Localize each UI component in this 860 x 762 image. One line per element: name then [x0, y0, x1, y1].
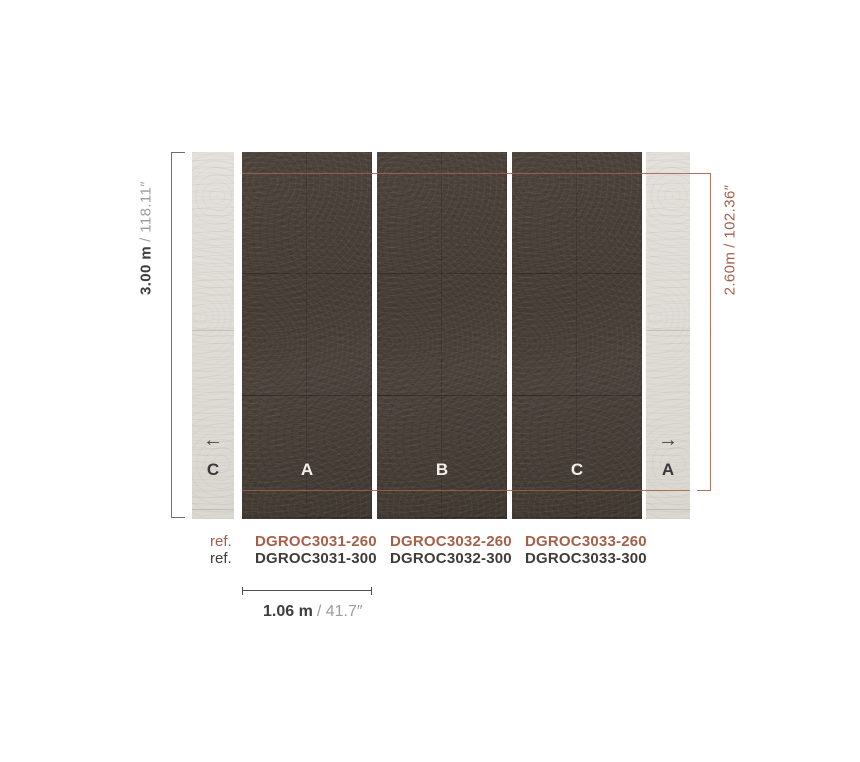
panel-light-right: → A: [646, 152, 690, 519]
panel-width-line: [242, 590, 372, 591]
panel-width-imperial: / 41.7″: [317, 603, 363, 620]
ref-code-panel-c-260: DGROC3033-260: [525, 533, 647, 550]
wallcovering-dimension-diagram: 3.00 m/ 118.11″ ← C A B C → A 2.60m/ 102…: [0, 0, 860, 762]
panel-width-metric: 1.06 m: [263, 603, 313, 620]
usable-height-bottom-line: [242, 490, 690, 491]
ref-code-panel-b-300: DGROC3032-300: [390, 550, 512, 567]
total-height-bracket-tick-bottom: [172, 517, 185, 518]
panel-width-tick-right: [371, 587, 372, 595]
ref-code-panel-b-260: DGROC3032-260: [390, 533, 512, 550]
panel-label-c: C: [571, 461, 583, 478]
total-height-imperial: / 118.11″: [138, 181, 155, 242]
ref-code-panel-a-300: DGROC3031-300: [255, 550, 377, 567]
total-height-dimension: 3.00 m/ 118.11″: [139, 181, 154, 295]
usable-height-dimension: 2.60m/ 102.36″: [723, 185, 738, 296]
ref-label-260: ref.: [210, 533, 232, 550]
ref-row-260: ref. DGROC3031-260 DGROC3032-260 DGROC30…: [0, 533, 860, 550]
usable-height-imperial: / 102.36″: [722, 185, 739, 248]
panel-label-b: B: [436, 461, 448, 478]
usable-height-bracket-tick: [697, 490, 710, 491]
repeat-direction-right-icon: →: [658, 430, 678, 450]
total-height-bracket-line: [171, 152, 172, 518]
panel-a: A: [242, 152, 372, 519]
repeat-direction-left-icon: ←: [203, 430, 223, 450]
usable-height-bracket-line: [710, 173, 711, 491]
panel-b: B: [377, 152, 507, 519]
panel-width-tick-left: [242, 587, 243, 595]
panel-light-left: ← C: [192, 152, 234, 519]
ref-code-panel-a-260: DGROC3031-260: [255, 533, 377, 550]
usable-height-metric: 2.60m: [722, 252, 739, 296]
panel-width-dimension: 1.06 m/ 41.7″: [263, 604, 363, 620]
total-height-bracket-tick-top: [172, 152, 185, 153]
panel-label-c-left: C: [207, 461, 219, 478]
usable-height-top-line: [242, 173, 710, 174]
panel-c: C: [512, 152, 642, 519]
panel-label-a: A: [301, 461, 313, 478]
panel-label-a-right: A: [662, 461, 674, 478]
ref-label-300: ref.: [210, 550, 232, 567]
total-height-metric: 3.00 m: [138, 246, 155, 295]
ref-row-300: ref. DGROC3031-300 DGROC3032-300 DGROC30…: [0, 550, 860, 567]
ref-code-panel-c-300: DGROC3033-300: [525, 550, 647, 567]
